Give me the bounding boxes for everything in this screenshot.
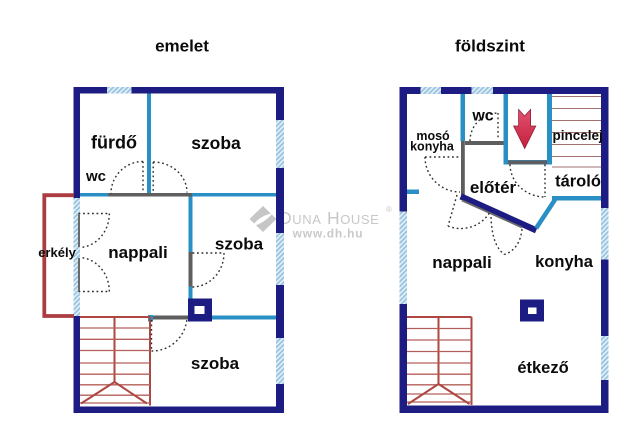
svg-text:emelet: emelet xyxy=(155,37,209,56)
svg-text:szoba: szoba xyxy=(215,235,264,254)
svg-text:nappali: nappali xyxy=(108,243,168,262)
svg-text:tároló: tároló xyxy=(555,173,601,191)
svg-text:étkező: étkező xyxy=(517,359,568,377)
svg-text:wc: wc xyxy=(471,108,493,125)
svg-text:konyha: konyha xyxy=(410,140,455,154)
svg-text:www.dh.hu: www.dh.hu xyxy=(292,227,364,241)
svg-text:szoba: szoba xyxy=(191,133,241,153)
svg-text:erkély: erkély xyxy=(38,245,76,260)
svg-text:nappali: nappali xyxy=(432,253,492,272)
svg-text:előtér: előtér xyxy=(470,178,517,197)
svg-text:fürdő: fürdő xyxy=(91,133,137,153)
svg-text:konyha: konyha xyxy=(535,253,594,271)
svg-text:pincelej: pincelej xyxy=(553,128,603,143)
svg-text:szoba: szoba xyxy=(191,354,240,373)
svg-text:®: ® xyxy=(386,205,392,214)
svg-text:wc: wc xyxy=(85,168,106,185)
svg-text:földszint: földszint xyxy=(455,37,525,56)
